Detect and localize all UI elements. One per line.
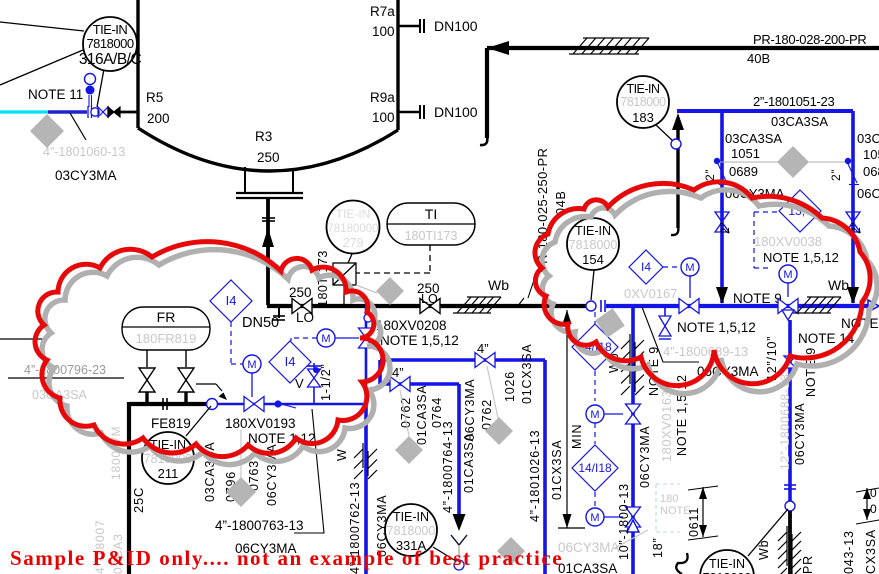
svg-text:200: 200 bbox=[147, 111, 170, 126]
svg-text:Sample P&ID only.... not an ex: Sample P&ID only.... not an example of b… bbox=[10, 546, 563, 570]
svg-text:TIE-IN: TIE-IN bbox=[626, 82, 660, 96]
svg-text:03CA3SA: 03CA3SA bbox=[725, 131, 782, 146]
svg-text:NOTE 1,5,12: NOTE 1,5,12 bbox=[677, 320, 756, 335]
svg-text:2”-1801051-23: 2”-1801051-23 bbox=[753, 94, 834, 109]
svg-text:TIE-IN: TIE-IN bbox=[393, 510, 429, 524]
svg-text:154: 154 bbox=[582, 252, 604, 267]
svg-text:R9a: R9a bbox=[370, 90, 395, 105]
svg-text:NOTE 1,5,12: NOTE 1,5,12 bbox=[380, 333, 459, 348]
svg-text:TIE-IN: TIE-IN bbox=[575, 224, 611, 238]
svg-text:4”: 4” bbox=[477, 341, 489, 356]
svg-text:06CY3MA: 06CY3MA bbox=[558, 540, 620, 555]
svg-text:06CY3MA: 06CY3MA bbox=[793, 402, 807, 465]
svg-text:NOTE 1,5,12: NOTE 1,5,12 bbox=[763, 250, 839, 265]
svg-text:W: W bbox=[335, 448, 349, 461]
svg-text:180FR819: 180FR819 bbox=[136, 331, 197, 346]
svg-text:183: 183 bbox=[632, 110, 654, 125]
svg-text:06CY3MA: 06CY3MA bbox=[463, 378, 477, 441]
svg-text:4”-1800689-13: 4”-1800689-13 bbox=[663, 344, 748, 359]
svg-text:180XV0038: 180XV0038 bbox=[754, 234, 822, 249]
svg-text:M: M bbox=[590, 409, 599, 421]
svg-text:1026: 1026 bbox=[503, 371, 517, 402]
svg-text:0689: 0689 bbox=[863, 164, 879, 179]
svg-text:043-13: 043-13 bbox=[842, 530, 856, 574]
svg-text:01CA3SA: 01CA3SA bbox=[462, 433, 476, 494]
svg-text:TIE-IN: TIE-IN bbox=[336, 207, 371, 221]
svg-text:4”-1800796-23: 4”-1800796-23 bbox=[24, 363, 106, 377]
svg-text:CX3SA: CX3SA bbox=[864, 529, 878, 574]
svg-text:MIN: MIN bbox=[570, 424, 584, 449]
svg-text:M: M bbox=[590, 512, 599, 524]
svg-text:7818000: 7818000 bbox=[387, 524, 436, 538]
svg-text:1051: 1051 bbox=[863, 147, 879, 162]
svg-text:100: 100 bbox=[372, 24, 395, 39]
svg-text:4”-1801026-13: 4”-1801026-13 bbox=[528, 430, 542, 522]
svg-text:PR: PR bbox=[801, 555, 815, 574]
svg-text:I4: I4 bbox=[641, 260, 651, 274]
svg-text:0XV0167: 0XV0167 bbox=[624, 286, 678, 301]
svg-text:M: M bbox=[685, 262, 694, 274]
svg-text:180XV0163: 180XV0163 bbox=[660, 389, 674, 462]
svg-text:DN50: DN50 bbox=[242, 315, 279, 331]
svg-text:I4: I4 bbox=[285, 354, 296, 369]
svg-text:DN100: DN100 bbox=[434, 104, 478, 120]
svg-text:7818000: 7818000 bbox=[569, 238, 618, 252]
svg-text:NOTE: NOTE bbox=[660, 505, 691, 517]
svg-text:TIE-IN: TIE-IN bbox=[93, 22, 128, 37]
svg-text:7818000: 7818000 bbox=[620, 95, 666, 109]
svg-text:FE819: FE819 bbox=[151, 416, 191, 431]
svg-text:25C: 25C bbox=[131, 487, 146, 513]
svg-text:0611: 0611 bbox=[687, 507, 701, 537]
svg-text:Wb: Wb bbox=[828, 277, 849, 293]
svg-text:4”-1800763-13: 4”-1800763-13 bbox=[215, 518, 304, 533]
svg-text:01CX3SA: 01CX3SA bbox=[520, 344, 534, 405]
svg-text:180XV0208: 180XV0208 bbox=[376, 318, 447, 333]
svg-text:I4: I4 bbox=[226, 293, 237, 308]
svg-text:316A/B/C: 316A/B/C bbox=[79, 51, 142, 68]
svg-text:250: 250 bbox=[289, 285, 312, 300]
svg-text:03CA3SA: 03CA3SA bbox=[771, 114, 828, 129]
svg-text:18”: 18” bbox=[651, 538, 665, 558]
svg-text:0: 0 bbox=[870, 486, 877, 500]
svg-text:Wb: Wb bbox=[488, 277, 509, 293]
svg-text:2”: 2” bbox=[829, 169, 843, 181]
svg-text:R7a: R7a bbox=[370, 4, 395, 19]
svg-text:TIE-IN: TIE-IN bbox=[709, 557, 745, 571]
svg-text:R3: R3 bbox=[255, 129, 272, 144]
svg-text:M: M bbox=[783, 269, 792, 281]
svg-text:06CY3MA: 06CY3MA bbox=[857, 186, 879, 201]
svg-text:DN100: DN100 bbox=[434, 18, 478, 34]
svg-text:2”: 2” bbox=[703, 169, 717, 181]
svg-text:NOTE 9: NOTE 9 bbox=[733, 291, 782, 306]
svg-text:4”-1800764-13: 4”-1800764-13 bbox=[441, 421, 455, 513]
svg-text:279: 279 bbox=[343, 236, 364, 250]
svg-text:R5: R5 bbox=[146, 90, 163, 105]
svg-text:06CY3MA: 06CY3MA bbox=[638, 425, 652, 488]
svg-text:40B: 40B bbox=[747, 51, 770, 66]
svg-text:01CA3SA: 01CA3SA bbox=[415, 385, 429, 446]
svg-text:180: 180 bbox=[660, 493, 678, 505]
svg-text:14/I18: 14/I18 bbox=[578, 461, 612, 475]
svg-text:LO: LO bbox=[421, 292, 438, 306]
svg-text:7818000: 7818000 bbox=[86, 36, 133, 51]
svg-text:TI: TI bbox=[425, 206, 437, 222]
svg-text:01CX3SA: 01CX3SA bbox=[550, 440, 564, 501]
svg-text:4"-1801060-13: 4"-1801060-13 bbox=[43, 145, 125, 159]
svg-text:03CY3MA: 03CY3MA bbox=[55, 168, 117, 183]
svg-text:1-1/2”: 1-1/2” bbox=[319, 364, 333, 401]
svg-text:78180000: 78180000 bbox=[327, 223, 378, 235]
svg-text:V: V bbox=[295, 376, 304, 391]
svg-text:01CA3SA: 01CA3SA bbox=[558, 561, 617, 574]
svg-text:180XV0193: 180XV0193 bbox=[225, 416, 296, 431]
svg-text:0689: 0689 bbox=[729, 164, 758, 179]
svg-text:M: M bbox=[321, 333, 330, 345]
svg-text:PR-180-028-200-PR: PR-180-028-200-PR bbox=[753, 32, 866, 47]
svg-text:1051: 1051 bbox=[731, 146, 760, 161]
svg-text:180TI173: 180TI173 bbox=[405, 229, 458, 243]
svg-text:211: 211 bbox=[158, 466, 179, 481]
svg-text:FR: FR bbox=[157, 309, 176, 325]
svg-text:NOTE 11: NOTE 11 bbox=[28, 87, 83, 102]
svg-text:0: 0 bbox=[870, 502, 877, 516]
svg-text:03CA3SA: 03CA3SA bbox=[857, 131, 879, 146]
svg-text:4”: 4” bbox=[392, 365, 404, 380]
svg-text:2”: 2” bbox=[718, 222, 732, 234]
svg-text:LO: LO bbox=[296, 310, 314, 325]
svg-text:M: M bbox=[247, 359, 256, 371]
svg-text:250: 250 bbox=[257, 150, 280, 165]
svg-text:100: 100 bbox=[372, 110, 395, 125]
